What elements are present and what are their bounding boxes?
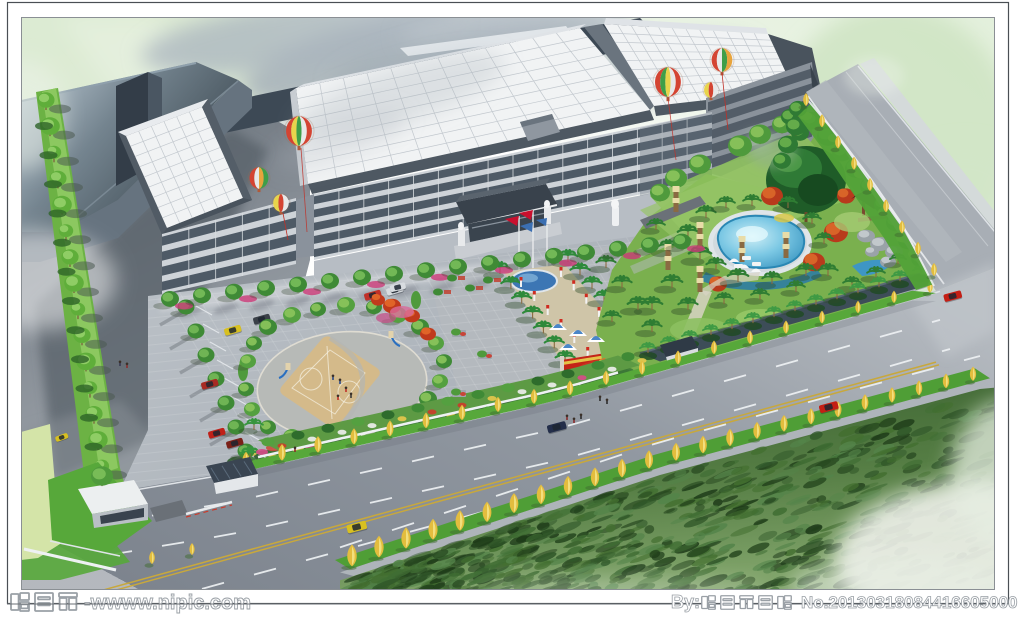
svg-text:-wwww.nipic.com: -wwww.nipic.com (84, 592, 251, 614)
svg-text:By:: By: (671, 592, 700, 612)
svg-text:No.20130318084416605000: No.20130318084416605000 (801, 593, 1017, 612)
